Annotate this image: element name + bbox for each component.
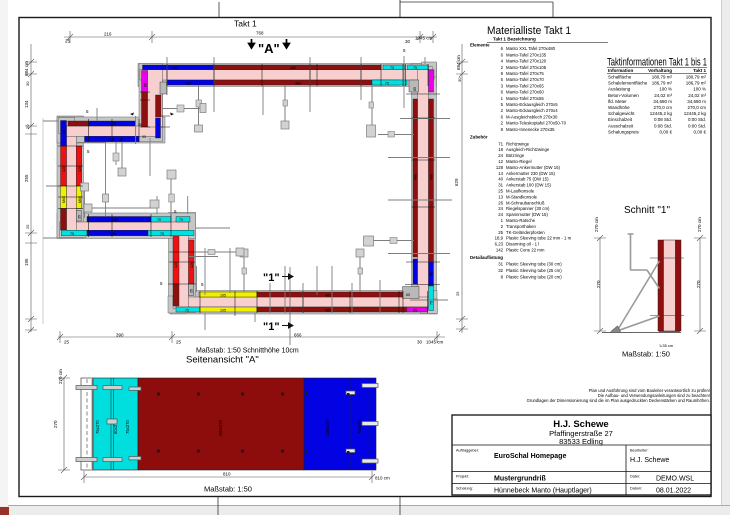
svg-text:270 cm: 270 cm [594, 217, 599, 232]
svg-text:Manto-Tafel 270x65: Manto-Tafel 270x65 [506, 83, 544, 88]
svg-text:100 %: 100 % [693, 87, 706, 92]
svg-text:Auslastung: Auslastung [608, 87, 631, 92]
svg-text:Manto-Ratsche: Manto-Ratsche [506, 218, 536, 223]
svg-text:Plastic Sleeving tube (25 cm): Plastic Sleeving tube (25 cm) [506, 268, 562, 273]
svg-text:Beton-Volumen: Beton-Volumen [608, 93, 639, 98]
svg-text:Elemente: Elemente [470, 43, 490, 48]
svg-text:25: 25 [176, 340, 182, 345]
svg-text:135: 135 [185, 82, 191, 86]
svg-text:Plastic Sleeving tube 22 mm -: Plastic Sleeving tube 22 mm - 1 m [506, 236, 572, 241]
svg-text:810: 810 [223, 472, 231, 477]
svg-text:Maßstab: 1:50: Maßstab: 1:50 [622, 350, 670, 359]
svg-text:Ankerstab 75 (DW 15): Ankerstab 75 (DW 15) [506, 177, 549, 182]
svg-text:34,680 m: 34,680 m [687, 99, 706, 104]
svg-text:40: 40 [498, 177, 503, 182]
svg-text:Schalung:: Schalung: [456, 487, 473, 491]
svg-text:Ausschalzeit: Ausschalzeit [608, 123, 634, 128]
svg-text:Ausgleich-Richtzwinge: Ausgleich-Richtzwinge [506, 147, 550, 152]
svg-text:75: 75 [413, 66, 417, 70]
svg-text:75: 75 [160, 232, 164, 236]
svg-text:lfd. Meter: lfd. Meter [608, 99, 627, 104]
svg-text:Manto-Riegel: Manto-Riegel [506, 159, 532, 164]
svg-text:25: 25 [455, 291, 460, 296]
svg-text:18: 18 [498, 147, 503, 152]
svg-text:32: 32 [498, 268, 503, 273]
svg-text:TK-Geländerpfosten: TK-Geländerpfosten [506, 230, 545, 235]
svg-text:Bützringe: Bützringe [506, 153, 525, 158]
svg-text:31: 31 [498, 183, 503, 188]
svg-text:Information: Information [608, 68, 633, 73]
svg-text:Vorhaltung: Vorhaltung [648, 68, 672, 73]
svg-text:Maßstab: 1:50 Schnitthöhe 10: Maßstab: 1:50 Schnitthöhe 10cm [196, 348, 299, 355]
svg-text:24: 24 [498, 212, 503, 217]
svg-text:75x270: 75x270 [125, 420, 130, 434]
svg-text:Datei:: Datei: [630, 475, 640, 479]
svg-text:12445,2 kg: 12445,2 kg [684, 111, 707, 116]
svg-text:Maßstab: 1:50: Maßstab: 1:50 [204, 485, 252, 494]
svg-text:Manto-Tafel 270x120: Manto-Tafel 270x120 [506, 59, 547, 64]
svg-text:270,0 cm: 270,0 cm [687, 105, 706, 110]
svg-text:120: 120 [174, 262, 178, 268]
svg-text:666: 666 [294, 333, 302, 338]
svg-text:186,79 m²: 186,79 m² [652, 81, 673, 86]
svg-text:18,9: 18,9 [495, 236, 504, 241]
svg-text:195: 195 [24, 258, 29, 266]
svg-text:14: 14 [498, 171, 503, 176]
svg-text:0,00 €: 0,00 € [693, 129, 706, 134]
svg-text:6,23: 6,23 [495, 242, 504, 247]
svg-text:390: 390 [116, 333, 124, 338]
svg-text:Manto-Innenecke 270x35: Manto-Innenecke 270x35 [506, 127, 555, 132]
svg-text:134: 134 [24, 100, 29, 108]
svg-text:180,79 m²: 180,79 m² [686, 75, 707, 80]
svg-text:Manto-Tafel 270x60: Manto-Tafel 270x60 [506, 90, 544, 95]
svg-text:Plastic Sleeving tube (30 cm): Plastic Sleeving tube (30 cm) [506, 262, 562, 267]
svg-text:Takt 1: Takt 1 [234, 19, 257, 29]
svg-text:Materialliste Takt 1: Materialliste Takt 1 [487, 25, 571, 37]
svg-text:255: 255 [24, 174, 29, 182]
svg-text:35: 35 [138, 123, 142, 127]
svg-text:Manto-Ankermutter (DW 15): Manto-Ankermutter (DW 15) [506, 165, 561, 170]
svg-text:12: 12 [498, 159, 503, 164]
svg-text:↳35 cm: ↳35 cm [659, 343, 674, 348]
svg-text:270 cm: 270 cm [697, 217, 702, 232]
svg-text:31: 31 [498, 262, 503, 267]
svg-text:270: 270 [596, 280, 601, 288]
svg-text:Manto-Tafel 270x105: Manto-Tafel 270x105 [506, 65, 547, 70]
svg-text:100 %: 100 % [659, 87, 672, 92]
svg-text:135: 135 [110, 122, 116, 126]
svg-text:270,0 cm: 270,0 cm [653, 105, 672, 110]
svg-text:Manto XXL Tafel 270x480: Manto XXL Tafel 270x480 [506, 46, 556, 51]
svg-text:Takt 1: Takt 1 [693, 68, 706, 73]
svg-text:128: 128 [496, 165, 504, 170]
svg-text:"1": "1" [263, 272, 280, 284]
svg-text:Manto-Eckausgleich 270x5: Manto-Eckausgleich 270x5 [506, 102, 558, 107]
svg-text:480x270: 480x270 [218, 419, 223, 436]
svg-text:216: 216 [104, 32, 112, 37]
svg-text:30: 30 [405, 39, 411, 44]
svg-text:30: 30 [457, 77, 462, 82]
svg-text:Manto-Teleskoptafel 270x50-70: Manto-Teleskoptafel 270x50-70 [506, 121, 567, 126]
svg-text:684 cm: 684 cm [24, 61, 29, 76]
svg-text:25: 25 [25, 224, 30, 229]
svg-text:25: 25 [498, 189, 503, 194]
svg-text:Disarming oil - 1 l: Disarming oil - 1 l [506, 242, 539, 247]
svg-text:24,02 m³: 24,02 m³ [688, 93, 706, 98]
svg-text:480: 480 [413, 174, 417, 180]
svg-text:768: 768 [256, 31, 264, 36]
svg-text:25: 25 [64, 340, 70, 345]
svg-text:M65: M65 [62, 196, 66, 203]
svg-text:"1": "1" [263, 321, 280, 333]
svg-text:25: 25 [65, 39, 71, 44]
svg-text:M-Ausgleichsblech 270x30: M-Ausgleichsblech 270x30 [506, 114, 558, 119]
svg-text:Schalgewicht: Schalgewicht [608, 111, 635, 116]
svg-text:34,680 m: 34,680 m [653, 99, 672, 104]
svg-text:Hünnebeck Manto (Hauptlager): Hünnebeck Manto (Hauptlager) [494, 488, 592, 495]
svg-text:24: 24 [498, 206, 503, 211]
svg-text:Datum:: Datum: [630, 487, 642, 491]
svg-text:65: 65 [406, 293, 410, 297]
svg-text:120: 120 [190, 262, 194, 268]
svg-text:71: 71 [498, 141, 503, 146]
svg-text:120: 120 [78, 166, 82, 172]
svg-text:120: 120 [62, 166, 66, 172]
svg-text:0:08 Std.: 0:08 Std. [654, 117, 672, 122]
svg-text:270: 270 [53, 420, 58, 428]
svg-text:Schnitt "1": Schnitt "1" [624, 205, 670, 216]
svg-text:70x270: 70x270 [357, 420, 362, 434]
svg-text:Richtzwinge: Richtzwinge [506, 141, 530, 146]
svg-text:M-Schraubanschluß: M-Schraubanschluß [506, 200, 545, 205]
svg-text:0:00 Std.: 0:00 Std. [688, 117, 706, 122]
svg-text:70: 70 [179, 218, 183, 222]
svg-text:135: 135 [110, 232, 116, 236]
svg-text:135: 135 [172, 66, 178, 70]
svg-text:Takt 1 Bezeichnung: Takt 1 Bezeichnung [493, 37, 536, 42]
svg-text:65: 65 [429, 272, 433, 276]
svg-text:Plastic Sleeving tube (20 cm): Plastic Sleeving tube (20 cm) [506, 275, 562, 280]
svg-text:Wandhöhe: Wandhöhe [608, 105, 630, 110]
svg-text:105: 105 [220, 294, 226, 298]
svg-text:Projekt:: Projekt: [456, 475, 469, 479]
svg-text:1045 cm: 1045 cm [415, 36, 433, 41]
svg-text:65: 65 [62, 130, 66, 134]
svg-text:Transporthaken: Transporthaken [506, 224, 537, 229]
svg-text:135: 135 [108, 138, 114, 142]
svg-text:M-Laufkonsole: M-Laufkonsole [506, 189, 535, 194]
svg-text:180,79 m²: 180,79 m² [652, 75, 673, 80]
svg-text:Zubehör: Zubehör [470, 134, 488, 139]
svg-text:Bearbeiter:: Bearbeiter: [630, 449, 649, 453]
svg-text:1045 cm: 1045 cm [426, 340, 444, 345]
svg-text:65: 65 [413, 309, 417, 313]
svg-text:0:00 Std.: 0:00 Std. [688, 123, 706, 128]
svg-text:55: 55 [142, 135, 146, 139]
svg-text:0,00 €: 0,00 € [659, 129, 672, 134]
svg-text:Ankermutter 230 (DW 15): Ankermutter 230 (DW 15) [506, 171, 556, 176]
svg-text:75: 75 [385, 82, 389, 86]
svg-text:480: 480 [295, 82, 301, 86]
svg-text:85: 85 [413, 87, 417, 91]
svg-text:Auftraggeber:: Auftraggeber: [456, 449, 479, 453]
svg-text:12445,2 kg: 12445,2 kg [650, 111, 673, 116]
svg-text:75: 75 [185, 309, 189, 313]
svg-text:Schalelementfläche: Schalelementfläche [608, 81, 648, 86]
svg-text:DEMO.WSL: DEMO.WSL [656, 476, 694, 483]
svg-text:0:08 Std.: 0:08 Std. [654, 123, 672, 128]
svg-text:08.01.2022: 08.01.2022 [656, 488, 691, 495]
svg-text:13: 13 [498, 194, 503, 199]
svg-text:142: 142 [496, 248, 504, 253]
svg-text:Ankerstab 100 (DW 15): Ankerstab 100 (DW 15) [506, 183, 551, 188]
svg-text:Plastic Cone 22 mm: Plastic Cone 22 mm [506, 248, 545, 253]
svg-text:30: 30 [25, 81, 30, 86]
svg-text:480: 480 [325, 294, 331, 298]
svg-text:135: 135 [112, 218, 118, 222]
svg-text:25: 25 [498, 230, 503, 235]
svg-text:186,79 m²: 186,79 m² [686, 81, 707, 86]
svg-text:Manto-Tafel 270x70: Manto-Tafel 270x70 [506, 77, 544, 82]
svg-text:35: 35 [190, 289, 194, 293]
svg-text:Taktinformationen Takt 1 bis: Taktinformationen Takt 1 bis 1 [607, 57, 707, 69]
svg-text:"A": "A" [258, 41, 280, 56]
svg-text:24: 24 [498, 153, 503, 158]
svg-text:75: 75 [70, 232, 74, 236]
svg-text:26: 26 [498, 200, 503, 205]
svg-text:Schalfläche: Schalfläche [608, 75, 632, 80]
svg-text:30: 30 [417, 340, 423, 345]
svg-text:M-Standkonsole: M-Standkonsole [506, 194, 538, 199]
svg-text:480: 480 [325, 309, 331, 313]
svg-text:65: 65 [143, 83, 147, 87]
svg-text:Manto-Tafel 270x55: Manto-Tafel 270x55 [506, 96, 544, 101]
svg-text:Detailauflistung: Detailauflistung [470, 255, 503, 260]
svg-text:Grundlagen der Dimensionierung: Grundlagen der Dimensionierung sind die … [527, 398, 710, 403]
svg-text:75: 75 [390, 66, 394, 70]
svg-text:Schalungspreis: Schalungspreis [608, 129, 640, 134]
svg-text:24,02 m³: 24,02 m³ [654, 93, 672, 98]
svg-text:270: 270 [696, 280, 701, 288]
svg-text:Spannmutter (DW 15): Spannmutter (DW 15) [506, 212, 548, 217]
svg-text:EuroSchal Homepage: EuroSchal Homepage [494, 453, 566, 460]
svg-text:H.J. Schewe: H.J. Schewe [630, 457, 669, 464]
svg-text:83533 Edling: 83533 Edling [559, 437, 603, 446]
svg-text:Riegelspanner (30 cm): Riegelspanner (30 cm) [506, 206, 550, 211]
svg-text:480: 480 [429, 174, 433, 180]
svg-text:M65: M65 [78, 196, 82, 203]
svg-text:135x270: 135x270 [325, 419, 330, 436]
svg-text:Manto-Tafel 270x135: Manto-Tafel 270x135 [506, 52, 547, 57]
svg-text:20: 20 [25, 124, 30, 129]
svg-text:Mustergrundriß: Mustergrundriß [494, 476, 546, 483]
svg-text:Manto-Eckausgleich 270x4: Manto-Eckausgleich 270x4 [506, 108, 558, 113]
svg-text:70: 70 [157, 218, 161, 222]
svg-text:684 cm: 684 cm [456, 55, 461, 70]
svg-text:270 cm: 270 cm [58, 369, 63, 384]
svg-text:75x270: 75x270 [95, 420, 100, 434]
svg-text:Seitenansicht "A": Seitenansicht "A" [186, 355, 259, 366]
svg-text:35: 35 [77, 215, 81, 219]
svg-text:75: 75 [429, 301, 433, 305]
svg-text:810 cm: 810 cm [375, 476, 390, 481]
svg-text:Einschalzeit: Einschalzeit [608, 117, 633, 122]
svg-text:629: 629 [454, 178, 459, 186]
svg-text:Manto-Tafel 270x75: Manto-Tafel 270x75 [506, 71, 544, 76]
svg-text:105: 105 [220, 309, 226, 313]
svg-text:480: 480 [290, 66, 296, 70]
